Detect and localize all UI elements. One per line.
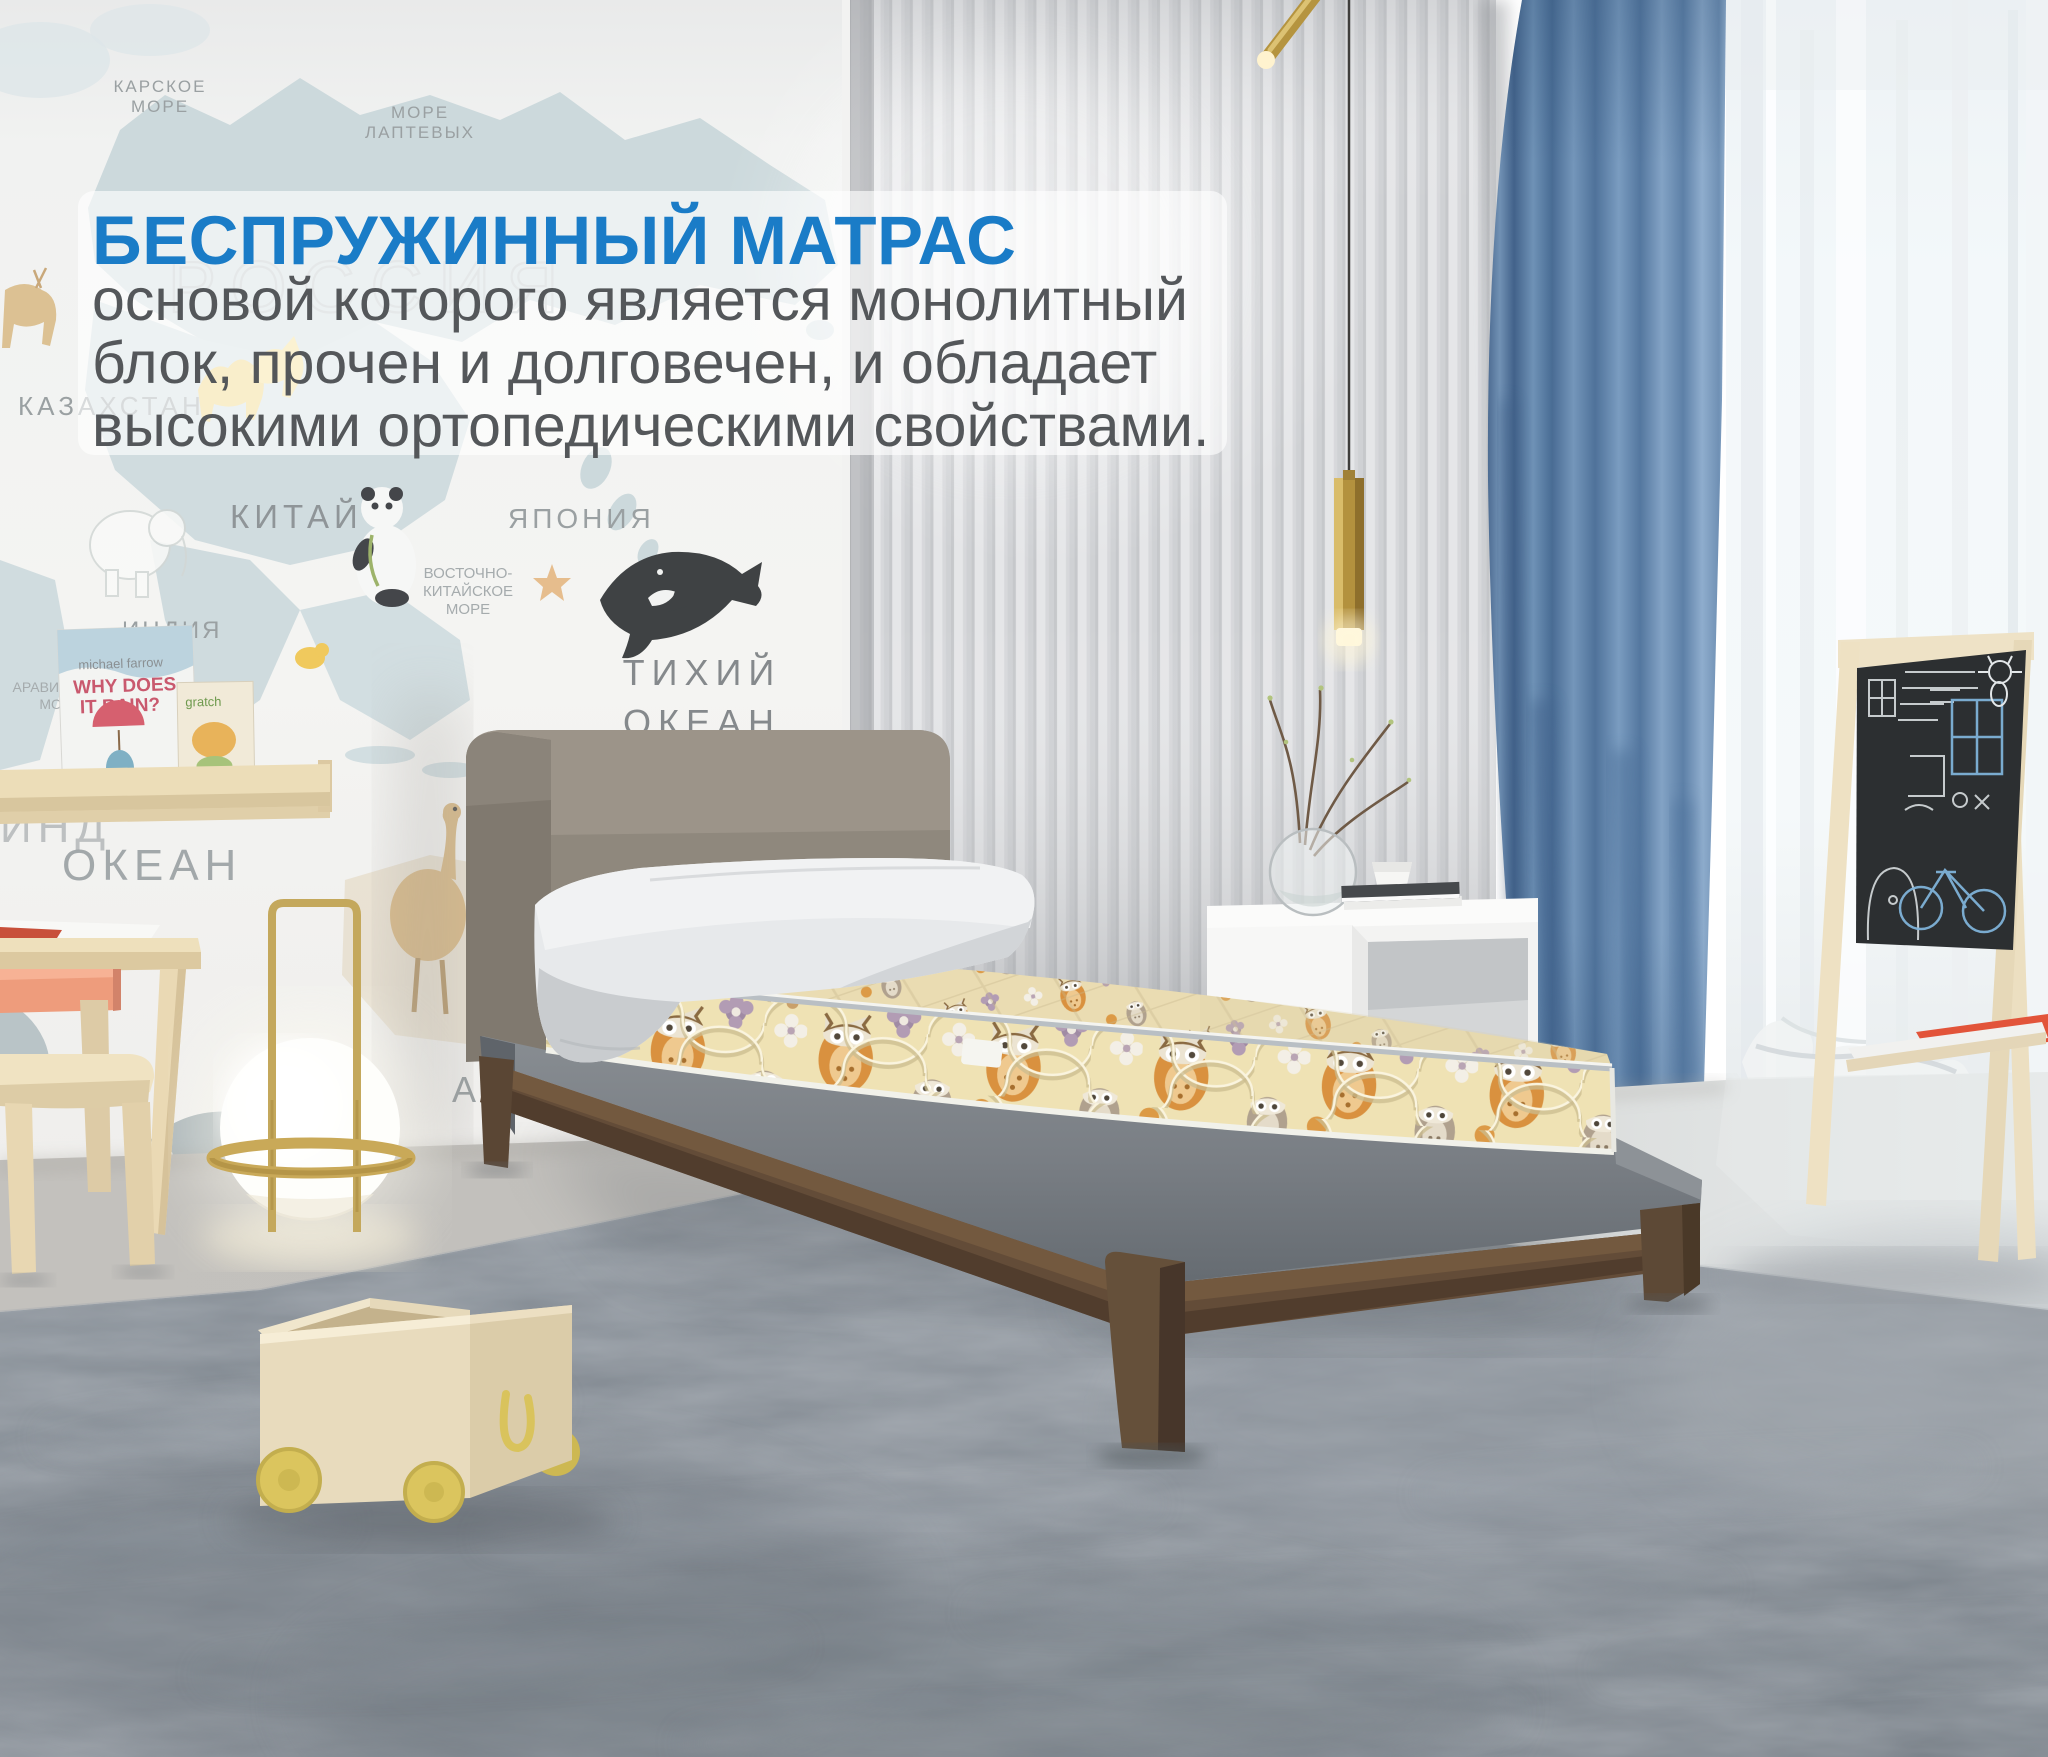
svg-text:МОРЕ: МОРЕ (131, 97, 189, 116)
svg-text:ТИХИЙ: ТИХИЙ (623, 651, 782, 693)
svg-text:ЛАПТЕВЫХ: ЛАПТЕВЫХ (365, 123, 475, 142)
svg-text:ОКЕАН: ОКЕАН (62, 841, 242, 890)
svg-text:КИТАЙСКОЕ: КИТАЙСКОЕ (423, 582, 513, 600)
svg-text:gratch: gratch (185, 694, 221, 710)
svg-text:michael farrow: michael farrow (78, 654, 164, 672)
svg-text:МОРЕ: МОРЕ (391, 103, 449, 122)
svg-text:ВОСТОЧНО-: ВОСТОЧНО- (424, 565, 513, 582)
svg-text:МОРЕ: МОРЕ (446, 601, 490, 618)
svg-text:ЯПОНИЯ: ЯПОНИЯ (508, 503, 655, 534)
svg-text:КИТАЙ: КИТАЙ (230, 498, 363, 535)
svg-text:КАРСКОЕ: КАРСКОЕ (114, 77, 207, 96)
